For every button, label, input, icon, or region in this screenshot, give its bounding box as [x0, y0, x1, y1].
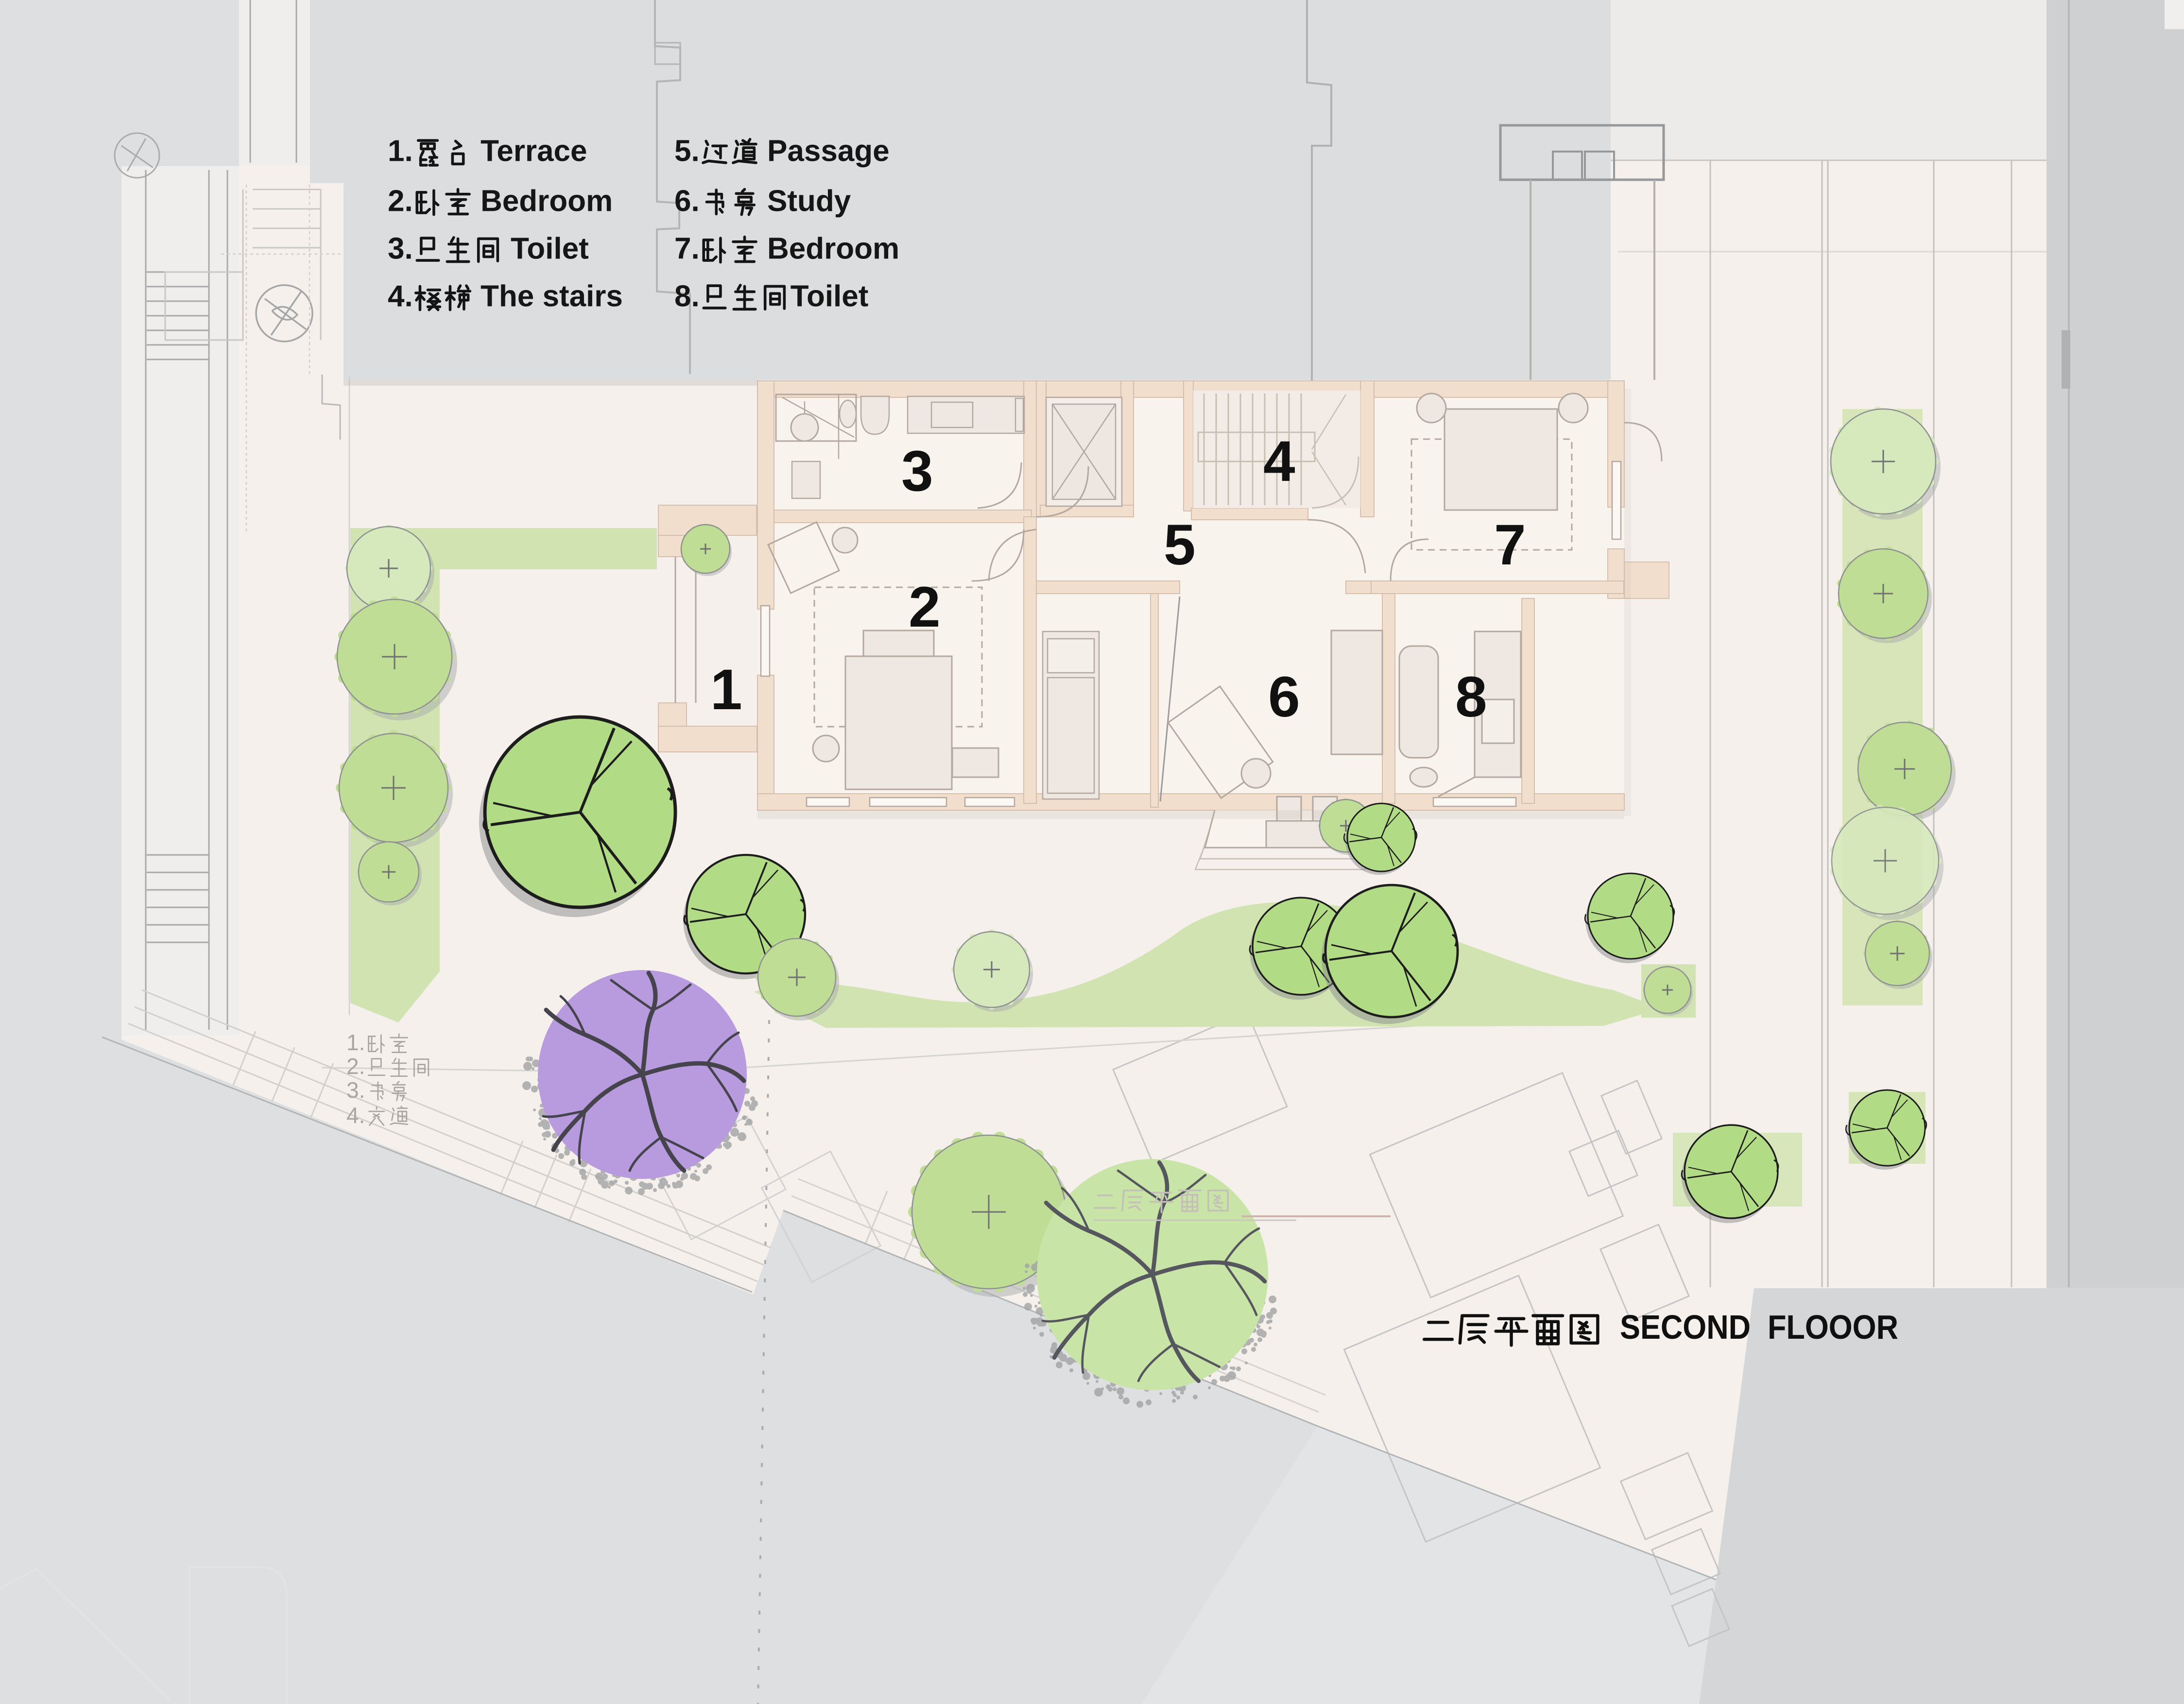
svg-text:4.: 4.: [346, 1103, 365, 1128]
svg-text:7.: 7.: [674, 232, 700, 265]
svg-text:SECOND FLOOOR: SECOND FLOOOR: [1620, 1308, 1898, 1346]
svg-text:Terrace: Terrace: [481, 134, 587, 168]
svg-text:8: 8: [1455, 665, 1487, 729]
svg-text:3: 3: [901, 439, 933, 503]
svg-text:Toilet: Toilet: [791, 279, 869, 313]
svg-text:2: 2: [909, 575, 941, 639]
svg-text:2.: 2.: [388, 184, 413, 218]
svg-text:Bedroom: Bedroom: [481, 184, 613, 218]
svg-text:Bedroom: Bedroom: [767, 232, 899, 265]
svg-text:Toilet: Toilet: [511, 232, 589, 265]
svg-text:1.: 1.: [346, 1030, 365, 1055]
svg-text:5.: 5.: [674, 134, 700, 168]
svg-text:5: 5: [1164, 513, 1196, 577]
svg-text:3.: 3.: [388, 232, 413, 265]
svg-text:1.: 1.: [388, 134, 413, 168]
svg-text:2.: 2.: [346, 1054, 365, 1079]
svg-text:4.: 4.: [388, 279, 413, 313]
svg-text:7: 7: [1494, 513, 1526, 577]
svg-text:The stairs: The stairs: [481, 279, 623, 313]
svg-text:6.: 6.: [674, 184, 700, 218]
svg-text:1: 1: [710, 658, 742, 722]
svg-text:4: 4: [1263, 429, 1295, 494]
svg-text:8.: 8.: [674, 279, 700, 313]
svg-text:6: 6: [1268, 665, 1300, 729]
svg-text:Passage: Passage: [767, 134, 890, 168]
svg-text:Study: Study: [767, 184, 851, 218]
svg-text:3.: 3.: [346, 1077, 365, 1103]
